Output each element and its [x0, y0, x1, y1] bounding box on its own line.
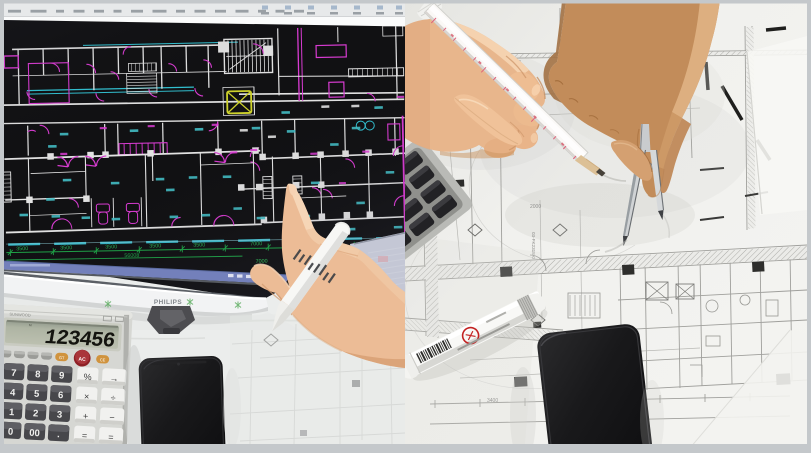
- svg-text:+: +: [83, 411, 89, 421]
- svg-text:9: 9: [59, 370, 65, 381]
- svg-text:6: 6: [58, 390, 64, 401]
- svg-text:÷: ÷: [110, 393, 116, 403]
- svg-text:%: %: [83, 372, 92, 382]
- svg-text:00: 00: [29, 428, 40, 440]
- svg-text:7: 7: [11, 368, 17, 379]
- svg-text:8: 8: [35, 369, 41, 380]
- svg-text:=: =: [108, 432, 114, 442]
- svg-text:3: 3: [57, 410, 63, 421]
- svg-text:123456: 123456: [42, 326, 116, 353]
- svg-text:=: =: [82, 431, 88, 441]
- svg-text:GT: GT: [59, 355, 65, 360]
- svg-text:AC: AC: [78, 357, 86, 363]
- svg-text:2: 2: [33, 408, 39, 419]
- svg-text:→: →: [109, 373, 119, 383]
- svg-text:0: 0: [8, 427, 14, 438]
- svg-text:PHILIPS: PHILIPS: [154, 299, 183, 306]
- svg-text:×: ×: [84, 391, 90, 401]
- svg-text:−: −: [109, 412, 115, 422]
- svg-text:CE: CE: [100, 357, 106, 362]
